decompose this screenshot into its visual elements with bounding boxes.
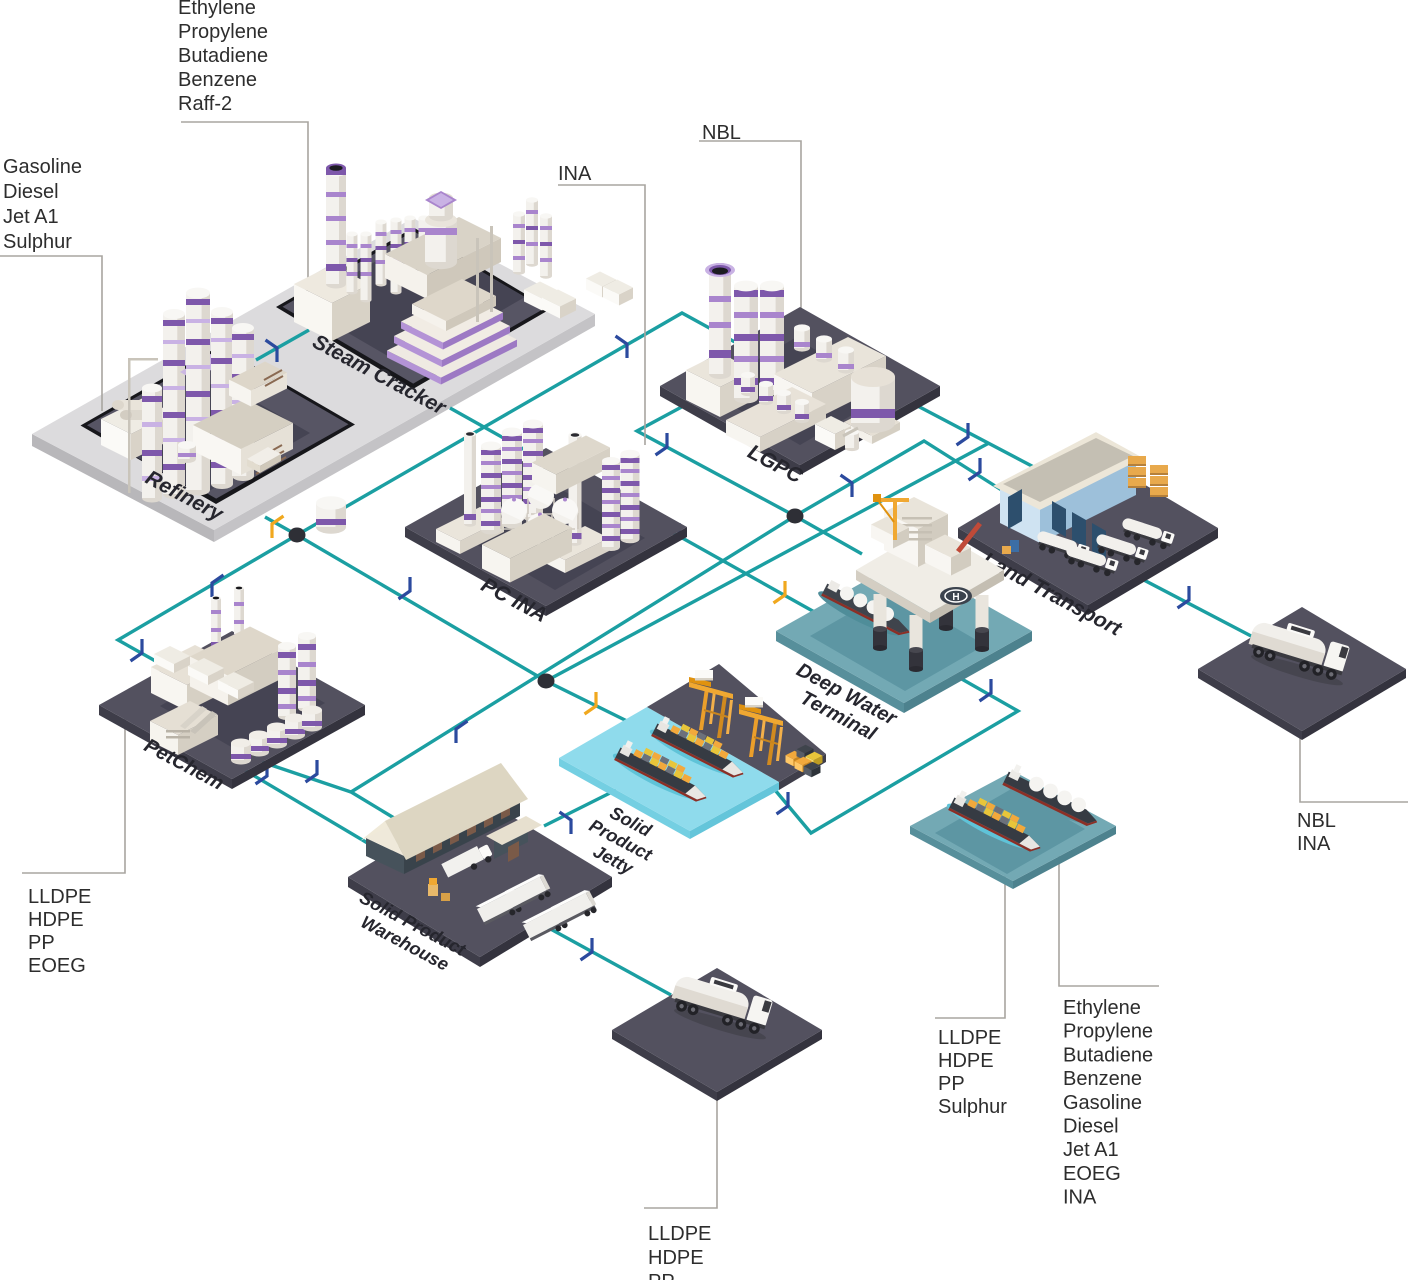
svg-text:INA: INA (558, 163, 596, 185)
svg-text:NBL: NBL (702, 122, 746, 144)
svg-text:H: H (952, 592, 959, 603)
svg-text:NBL INA: NBL INA (1297, 810, 1341, 855)
